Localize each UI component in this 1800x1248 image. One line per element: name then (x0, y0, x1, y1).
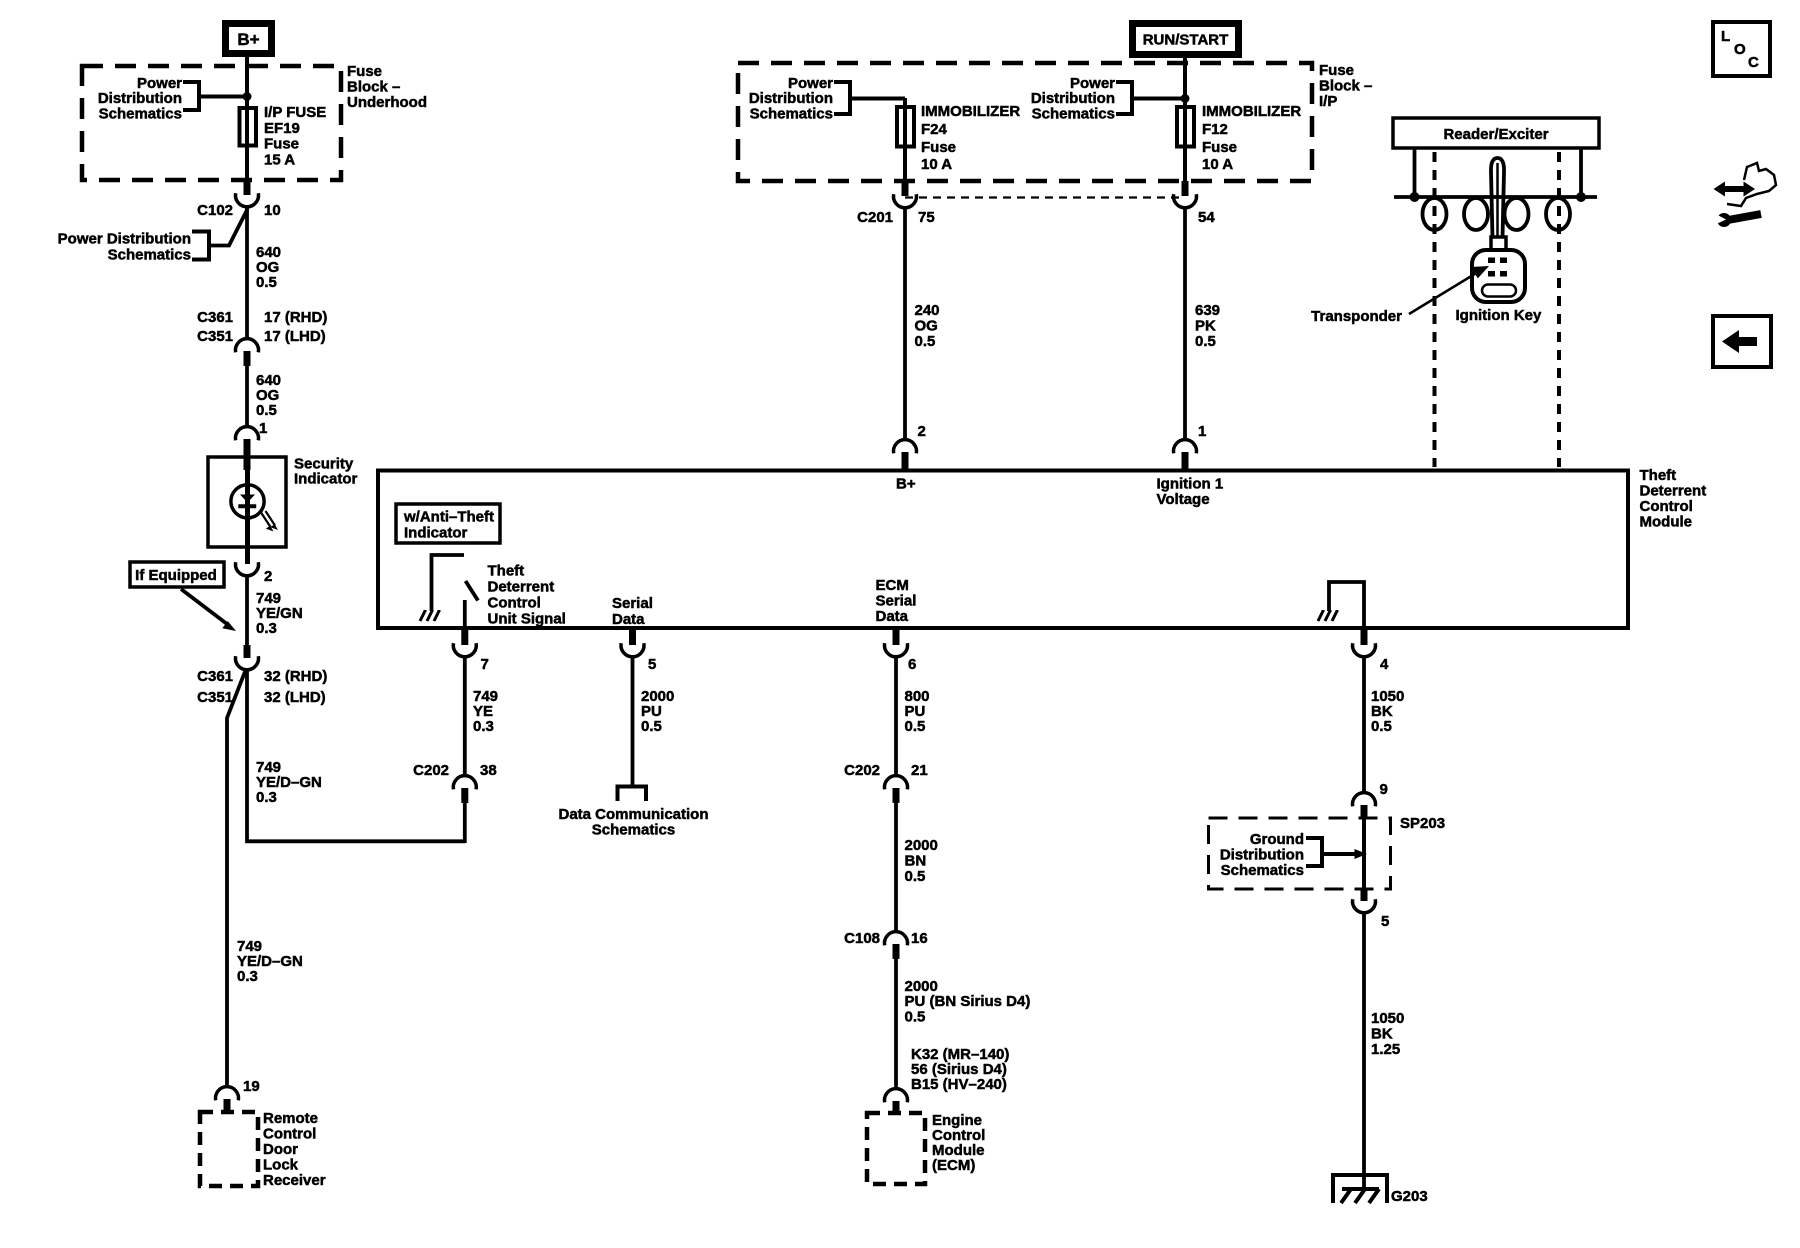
svg-text:0.5: 0.5 (1195, 333, 1216, 350)
svg-text:Transponder: Transponder (1311, 308, 1402, 325)
svg-text:Control: Control (1640, 498, 1693, 515)
svg-text:Ignition Key: Ignition Key (1456, 307, 1542, 324)
svg-text:SP203: SP203 (1400, 815, 1445, 832)
svg-text:0.5: 0.5 (256, 402, 277, 419)
svg-text:Schematics: Schematics (108, 247, 191, 264)
svg-text:Ground: Ground (1250, 831, 1304, 848)
svg-text:IMMOBILIZER: IMMOBILIZER (1202, 103, 1301, 120)
svg-text:Schematics: Schematics (1032, 106, 1115, 123)
svg-text:G203: G203 (1391, 1188, 1428, 1205)
svg-text:O: O (1734, 41, 1746, 58)
svg-text:1.25: 1.25 (1371, 1041, 1400, 1058)
svg-text:If Equipped: If Equipped (135, 567, 217, 584)
svg-text:38: 38 (480, 762, 497, 779)
svg-text:9: 9 (1380, 781, 1388, 798)
svg-text:Theft: Theft (488, 563, 525, 580)
svg-text:Fuse: Fuse (347, 63, 382, 80)
svg-text:PU (BN Sirius D4): PU (BN Sirius D4) (905, 993, 1031, 1010)
svg-text:(ECM): (ECM) (932, 1157, 975, 1174)
svg-text:L: L (1721, 28, 1730, 45)
svg-text:I/P FUSE: I/P FUSE (264, 104, 326, 121)
svg-text:C: C (1748, 54, 1759, 71)
svg-text:Module: Module (1640, 514, 1693, 531)
svg-text:Deterrent: Deterrent (1640, 483, 1707, 500)
svg-text:0.5: 0.5 (905, 868, 926, 885)
svg-text:Indicator: Indicator (404, 525, 468, 542)
svg-text:Data: Data (612, 611, 645, 628)
svg-text:C201: C201 (857, 209, 893, 226)
svg-text:OG: OG (915, 318, 938, 335)
svg-text:Schematics: Schematics (750, 106, 833, 123)
svg-text:639: 639 (1195, 302, 1220, 319)
svg-text:21: 21 (911, 762, 928, 779)
svg-text:1: 1 (1198, 423, 1206, 440)
svg-text:Fuse: Fuse (1319, 62, 1354, 79)
svg-text:Ignition 1: Ignition 1 (1157, 476, 1224, 493)
svg-text:Distribution: Distribution (1220, 847, 1304, 864)
svg-text:Data: Data (876, 608, 909, 625)
svg-text:Control: Control (263, 1126, 316, 1143)
svg-text:C351: C351 (197, 328, 233, 345)
svg-text:0.5: 0.5 (915, 333, 936, 350)
svg-text:19: 19 (243, 1078, 260, 1095)
svg-text:Deterrent: Deterrent (488, 579, 555, 596)
svg-text:RUN/START: RUN/START (1143, 32, 1229, 49)
svg-text:Schematics: Schematics (99, 106, 182, 123)
svg-text:10 A: 10 A (921, 156, 952, 173)
svg-text:EF19: EF19 (264, 120, 300, 137)
svg-text:1050: 1050 (1371, 1010, 1404, 1027)
svg-text:0.5: 0.5 (641, 718, 662, 735)
svg-text:BN: BN (905, 853, 927, 870)
svg-text:w/Anti–Theft: w/Anti–Theft (403, 509, 494, 526)
svg-text:Lock: Lock (263, 1157, 299, 1174)
svg-text:2: 2 (264, 568, 272, 585)
svg-text:F12: F12 (1202, 121, 1228, 138)
svg-text:Voltage: Voltage (1157, 491, 1210, 508)
svg-text:C108: C108 (844, 930, 880, 947)
svg-text:17 (LHD): 17 (LHD) (264, 328, 326, 345)
svg-text:Block –: Block – (1319, 78, 1372, 95)
svg-text:2: 2 (918, 423, 926, 440)
svg-text:17 (RHD): 17 (RHD) (264, 309, 327, 326)
svg-text:0.3: 0.3 (473, 718, 494, 735)
svg-text:10: 10 (264, 202, 281, 219)
svg-text:ECM: ECM (876, 577, 909, 594)
svg-text:2000: 2000 (905, 837, 938, 854)
svg-text:I/P: I/P (1319, 93, 1337, 110)
svg-text:5: 5 (1381, 913, 1389, 930)
svg-text:Distribution: Distribution (98, 90, 182, 107)
svg-text:Schematics: Schematics (1221, 862, 1304, 879)
svg-text:Schematics: Schematics (592, 822, 675, 839)
svg-text:C361: C361 (197, 668, 233, 685)
svg-text:Control: Control (488, 595, 541, 612)
svg-text:0.3: 0.3 (237, 968, 258, 985)
svg-text:Remote: Remote (263, 1110, 318, 1127)
svg-text:Receiver: Receiver (263, 1172, 326, 1189)
svg-text:Fuse: Fuse (264, 136, 299, 153)
svg-text:32 (RHD): 32 (RHD) (264, 668, 327, 685)
svg-text:C361: C361 (197, 309, 233, 326)
svg-text:10 A: 10 A (1202, 156, 1233, 173)
svg-text:Power Distribution: Power Distribution (58, 231, 191, 248)
svg-text:Reader/Exciter: Reader/Exciter (1443, 126, 1548, 143)
svg-text:Fuse: Fuse (1202, 139, 1237, 156)
svg-text:Underhood: Underhood (347, 94, 427, 111)
svg-text:7: 7 (481, 656, 489, 673)
svg-text:Distribution: Distribution (1031, 90, 1115, 107)
svg-text:0.5: 0.5 (1371, 718, 1392, 735)
svg-text:C202: C202 (844, 762, 880, 779)
svg-text:16: 16 (911, 930, 928, 947)
svg-text:B15 (HV–240): B15 (HV–240) (911, 1076, 1007, 1093)
svg-text:240: 240 (915, 302, 940, 319)
svg-text:Fuse: Fuse (921, 139, 956, 156)
svg-text:Unit Signal: Unit Signal (488, 611, 566, 628)
svg-text:0.5: 0.5 (905, 1009, 926, 1026)
svg-text:Block –: Block – (347, 79, 400, 96)
svg-text:Distribution: Distribution (749, 90, 833, 107)
svg-text:54: 54 (1198, 209, 1215, 226)
svg-text:Door: Door (263, 1141, 298, 1158)
svg-text:0.3: 0.3 (256, 620, 277, 637)
svg-text:15 A: 15 A (264, 152, 295, 169)
svg-text:Indicator: Indicator (294, 471, 358, 488)
svg-text:75: 75 (918, 209, 935, 226)
svg-text:1: 1 (259, 420, 267, 437)
svg-text:4: 4 (1380, 656, 1389, 673)
svg-text:Theft: Theft (1640, 467, 1677, 484)
svg-text:5: 5 (648, 656, 656, 673)
svg-text:IMMOBILIZER: IMMOBILIZER (921, 103, 1020, 120)
svg-text:0.5: 0.5 (256, 274, 277, 291)
svg-text:B+: B+ (896, 476, 916, 493)
svg-text:C202: C202 (413, 762, 449, 779)
svg-text:Data Communication: Data Communication (558, 806, 708, 823)
svg-text:C102: C102 (197, 202, 233, 219)
svg-text:Serial: Serial (876, 593, 917, 610)
svg-text:B+: B+ (237, 30, 259, 49)
svg-text:Serial: Serial (612, 595, 653, 612)
svg-text:F24: F24 (921, 121, 948, 138)
svg-text:C351: C351 (197, 689, 233, 706)
svg-text:BK: BK (1371, 1026, 1393, 1043)
svg-text:PK: PK (1195, 318, 1216, 335)
svg-text:0.5: 0.5 (905, 718, 926, 735)
svg-text:0.3: 0.3 (256, 789, 277, 806)
svg-text:32 (LHD): 32 (LHD) (264, 689, 326, 706)
svg-text:6: 6 (908, 656, 916, 673)
